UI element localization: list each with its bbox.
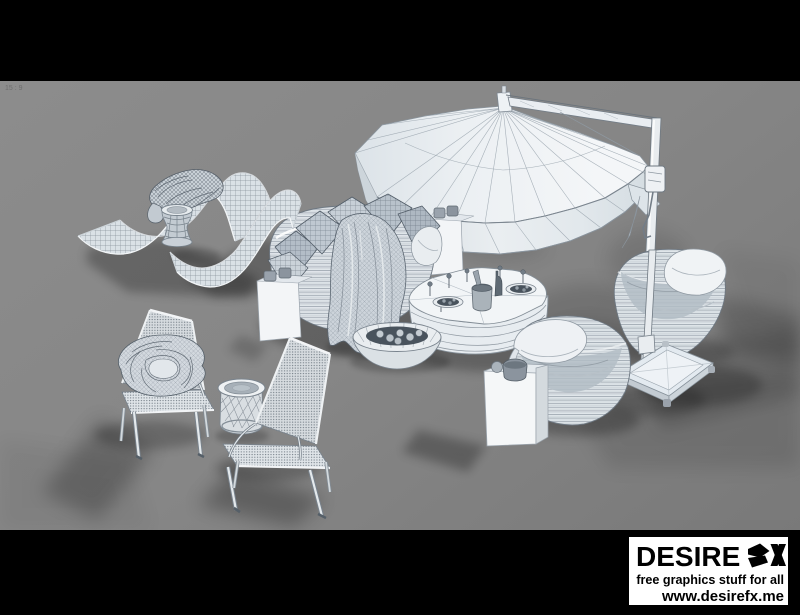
- svg-text:15 : 9: 15 : 9: [5, 85, 23, 92]
- svg-text:DESIRE: DESIRE: [636, 541, 740, 572]
- svg-text:free graphics stuff for all: free graphics stuff for all: [636, 573, 784, 587]
- svg-text:www.desirefx.me: www.desirefx.me: [661, 588, 784, 605]
